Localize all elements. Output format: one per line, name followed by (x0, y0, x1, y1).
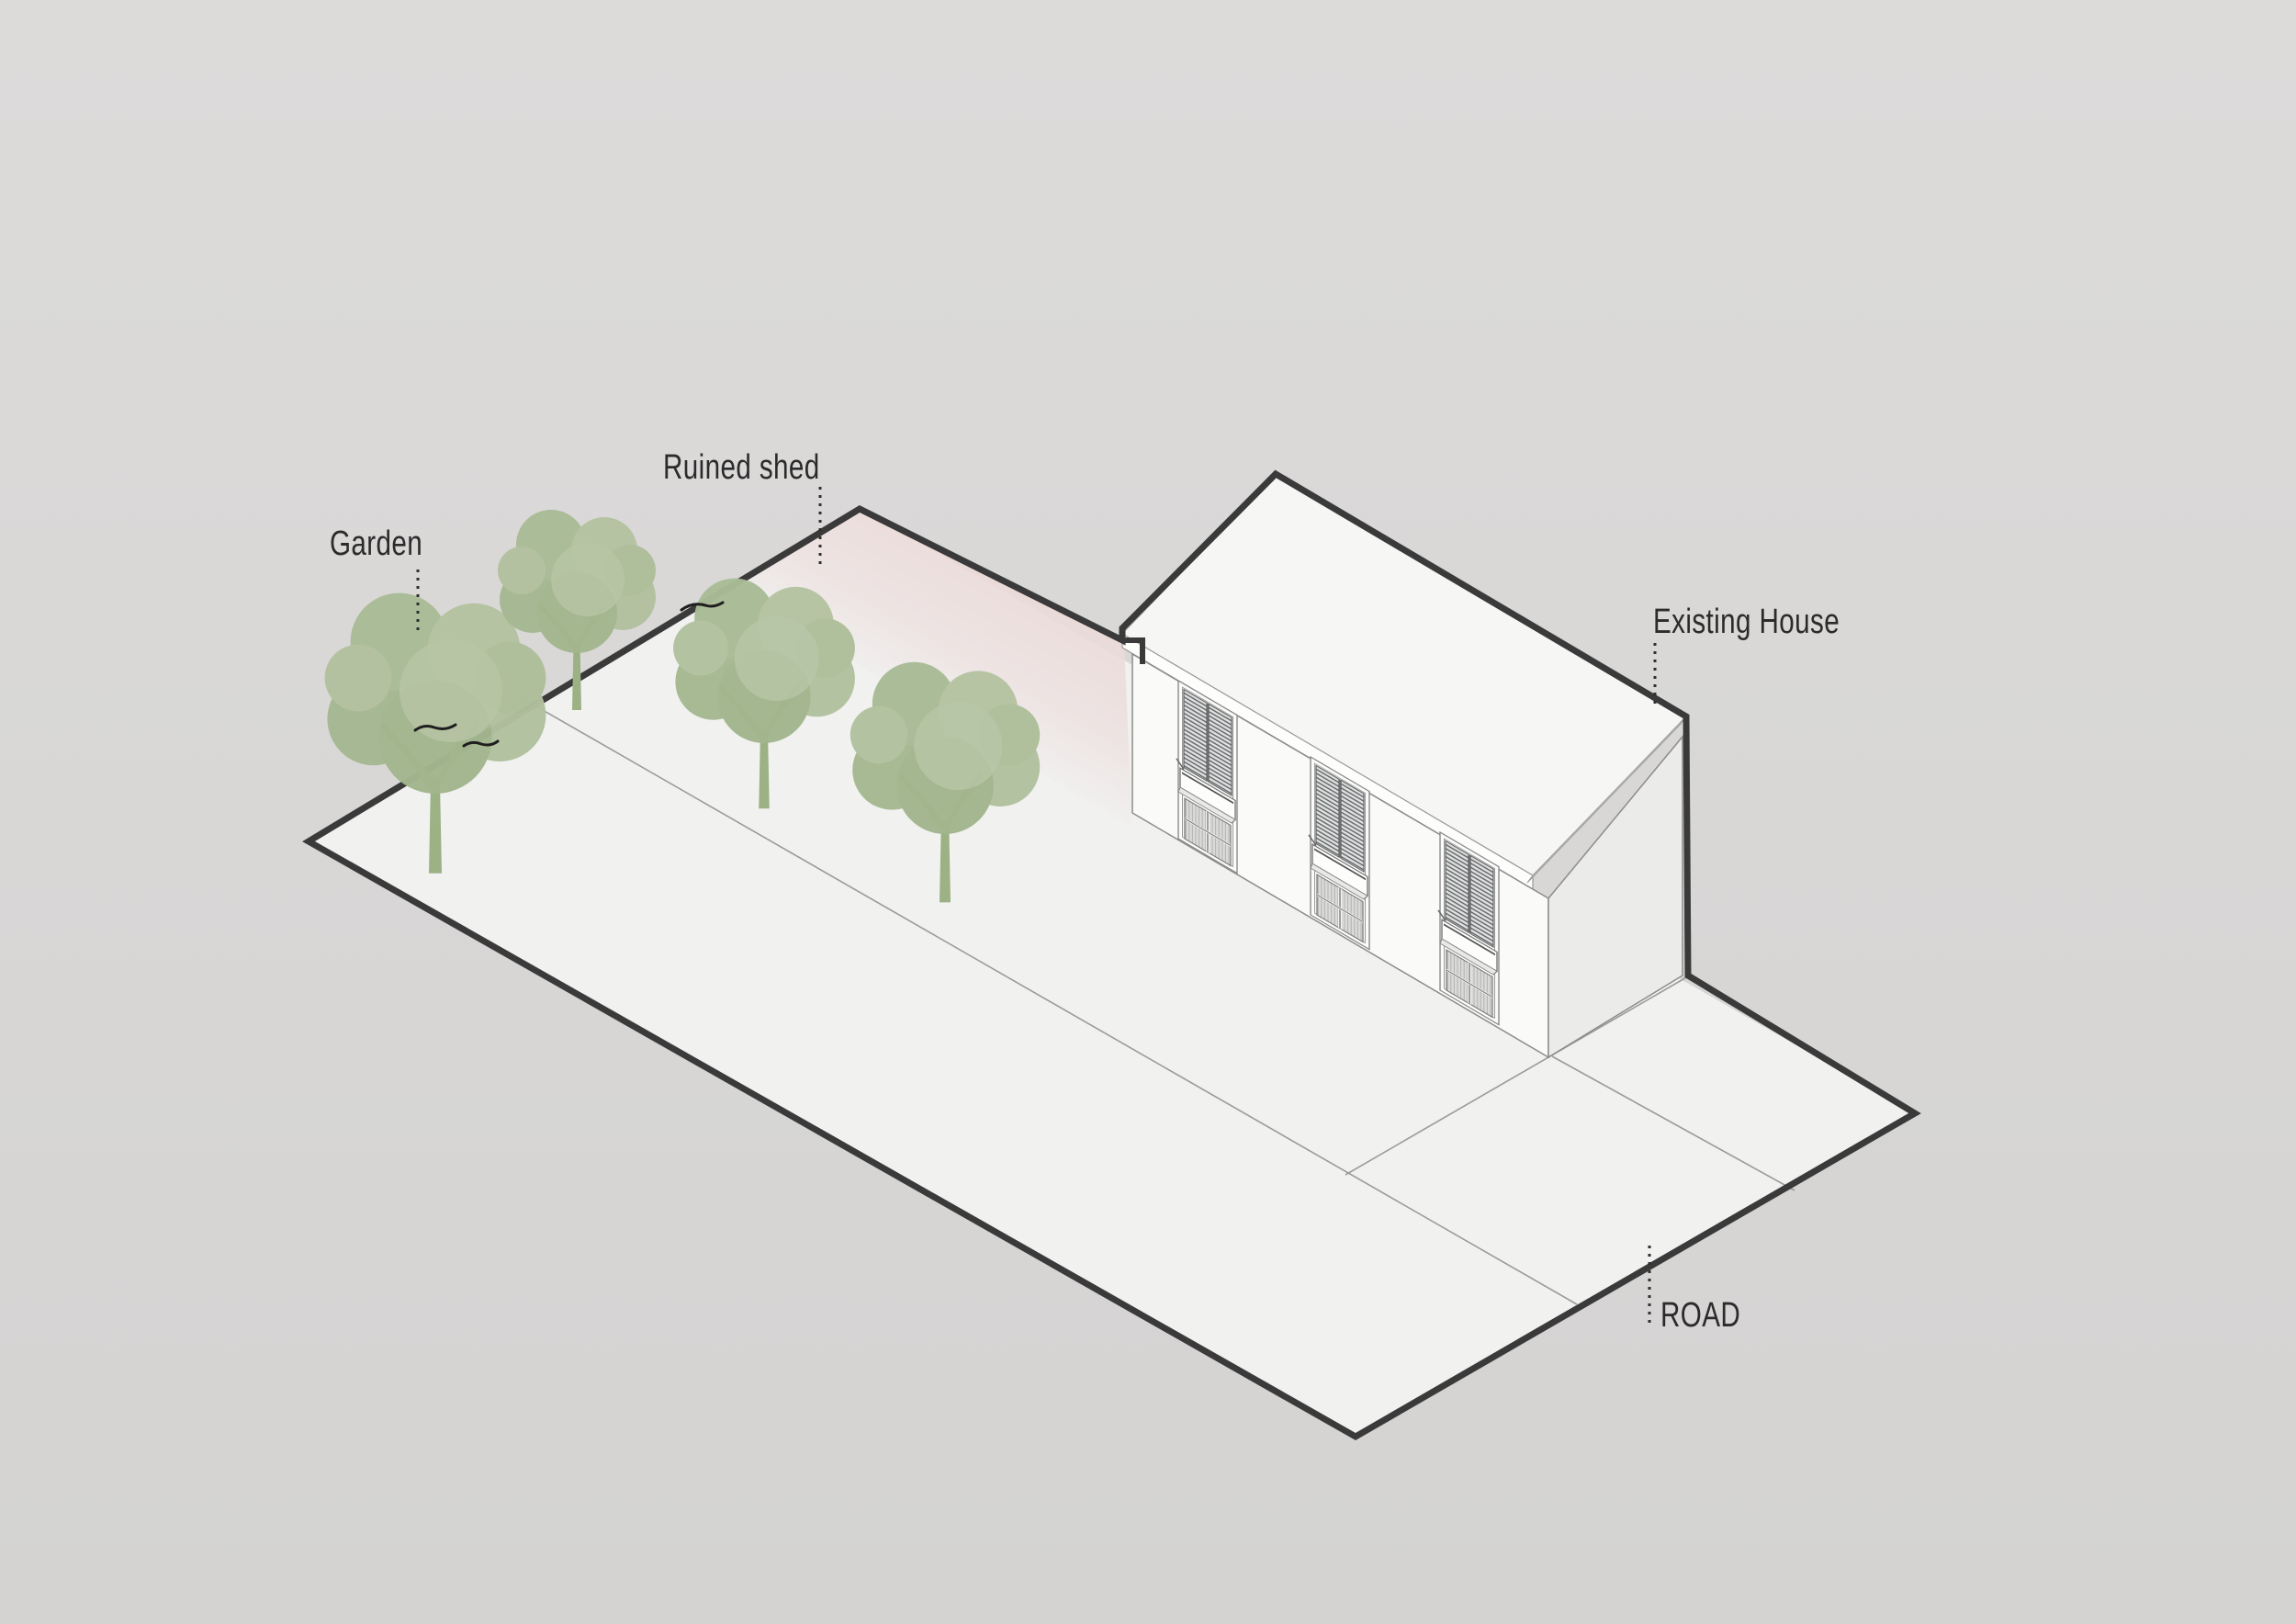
existing-house-label: Existing House (1653, 603, 1840, 641)
garden-label: Garden (330, 524, 422, 563)
road-label: ROAD (1660, 1296, 1740, 1335)
ruined-shed-label: Ruined shed (663, 448, 820, 487)
site-diagram: Garden Ruined shed Existing House ROAD (0, 0, 2296, 1624)
